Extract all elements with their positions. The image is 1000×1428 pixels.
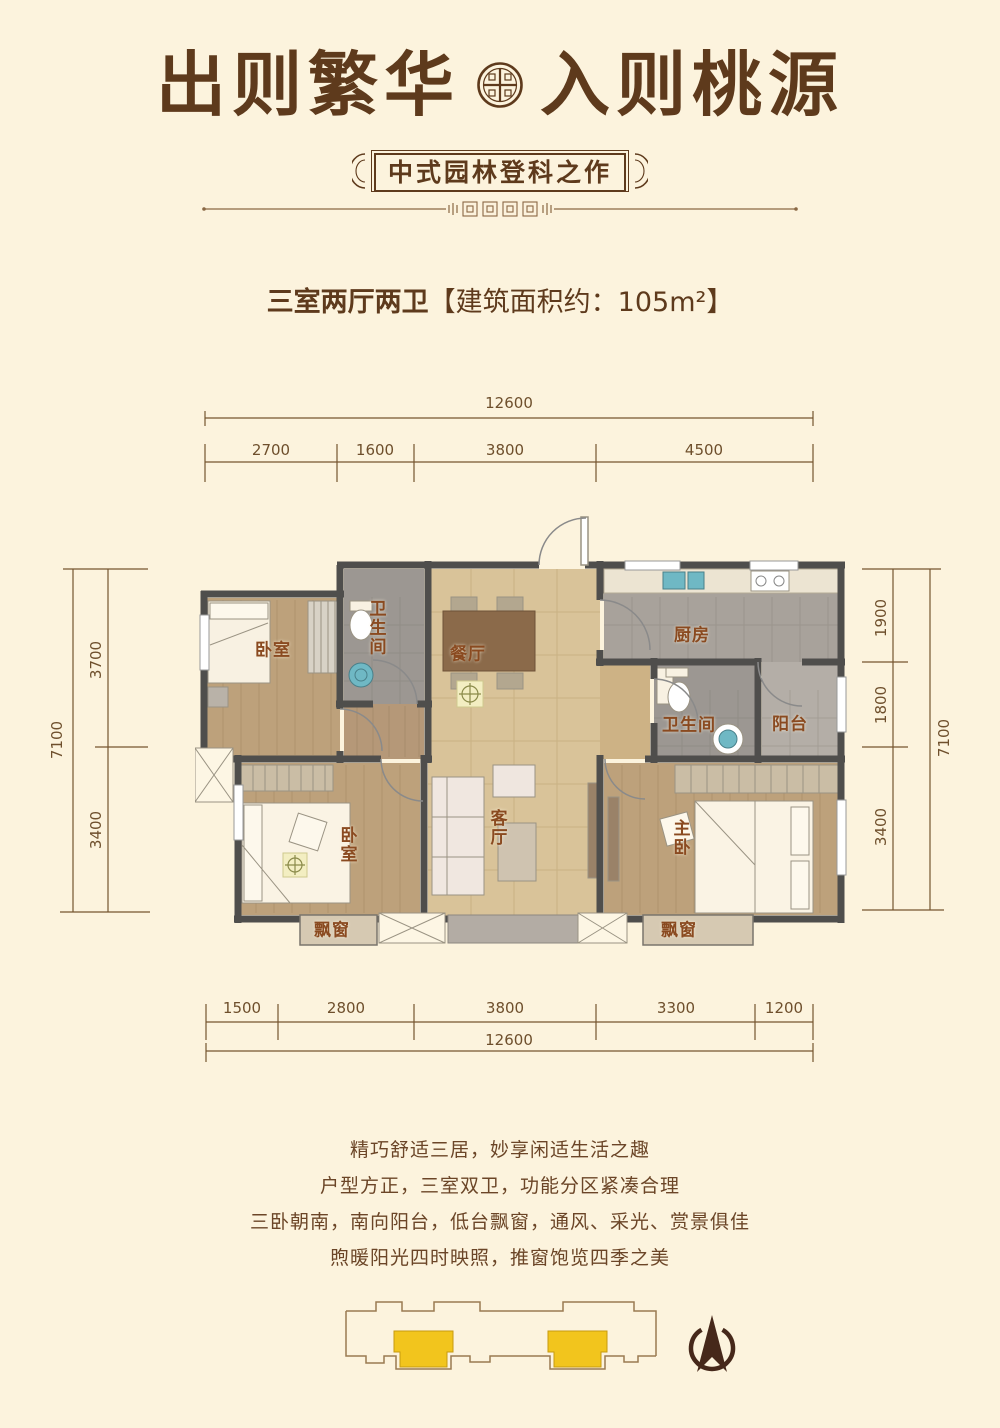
dim-bottom-seg-4: 3300	[657, 999, 695, 1017]
floorplan-poster-page: 出则繁华 入则桃源 中式园林登科之作	[0, 0, 1000, 1428]
building-outline	[346, 1302, 656, 1369]
room-label-master: 主卧	[668, 819, 693, 857]
dim-bottom-seg-2: 2800	[327, 999, 365, 1017]
dim-bottom-seg-1: 1500	[223, 999, 261, 1017]
dim-bottom-total: 12600	[485, 1031, 533, 1049]
room-label-balcony: 阳台	[772, 710, 808, 735]
room-label-bay-left: 飘窗	[314, 916, 350, 941]
dim-right-seg-3: 3400	[872, 808, 890, 846]
dim-right-seg-1: 1900	[872, 599, 890, 637]
room-label-bay-right: 飘窗	[661, 916, 697, 941]
room-label-bedroom-top: 卧室	[255, 636, 291, 661]
highlighted-unit-right	[548, 1331, 607, 1367]
dim-left-total: 7100	[48, 721, 66, 759]
dim-right-seg-2: 1800	[872, 686, 890, 724]
description-line: 精巧舒适三居，妙享闲适生活之趣	[0, 1132, 1000, 1168]
highlighted-unit-left	[394, 1331, 453, 1367]
dim-left-seg-2: 3400	[87, 811, 105, 849]
dim-top-seg-1: 2700	[252, 441, 290, 459]
dim-bottom-seg-3: 3800	[486, 999, 524, 1017]
dim-bottom-seg-5: 1200	[765, 999, 803, 1017]
dim-top-total: 12600	[485, 394, 533, 412]
dim-top-seg-2: 1600	[356, 441, 394, 459]
room-label-bath-top: 卫生间	[364, 600, 389, 657]
room-label-bedroom-bottom: 卧室	[335, 826, 360, 864]
building-key-plan	[338, 1293, 668, 1393]
dim-right-total: 7100	[935, 719, 953, 757]
north-compass-icon	[686, 1312, 740, 1384]
room-label-living: 客厅	[485, 809, 510, 847]
dim-top-seg-4: 4500	[685, 441, 723, 459]
description-line: 煦暖阳光四时映照，推窗饱览四季之美	[0, 1240, 1000, 1276]
room-label-bath-right: 卫生间	[662, 711, 716, 736]
dim-top-seg-3: 3800	[486, 441, 524, 459]
room-label-dining: 餐厅	[450, 640, 486, 665]
description-block: 精巧舒适三居，妙享闲适生活之趣 户型方正，三室双卫，功能分区紧凑合理 三卧朝南，…	[0, 1132, 1000, 1276]
description-line: 三卧朝南，南向阳台，低台飘窗，通风、采光、赏景俱佳	[0, 1204, 1000, 1240]
dim-left-seg-1: 3700	[87, 641, 105, 679]
room-label-kitchen: 厨房	[674, 621, 710, 646]
floor-plan-drawing	[195, 505, 850, 975]
description-line: 户型方正，三室双卫，功能分区紧凑合理	[0, 1168, 1000, 1204]
